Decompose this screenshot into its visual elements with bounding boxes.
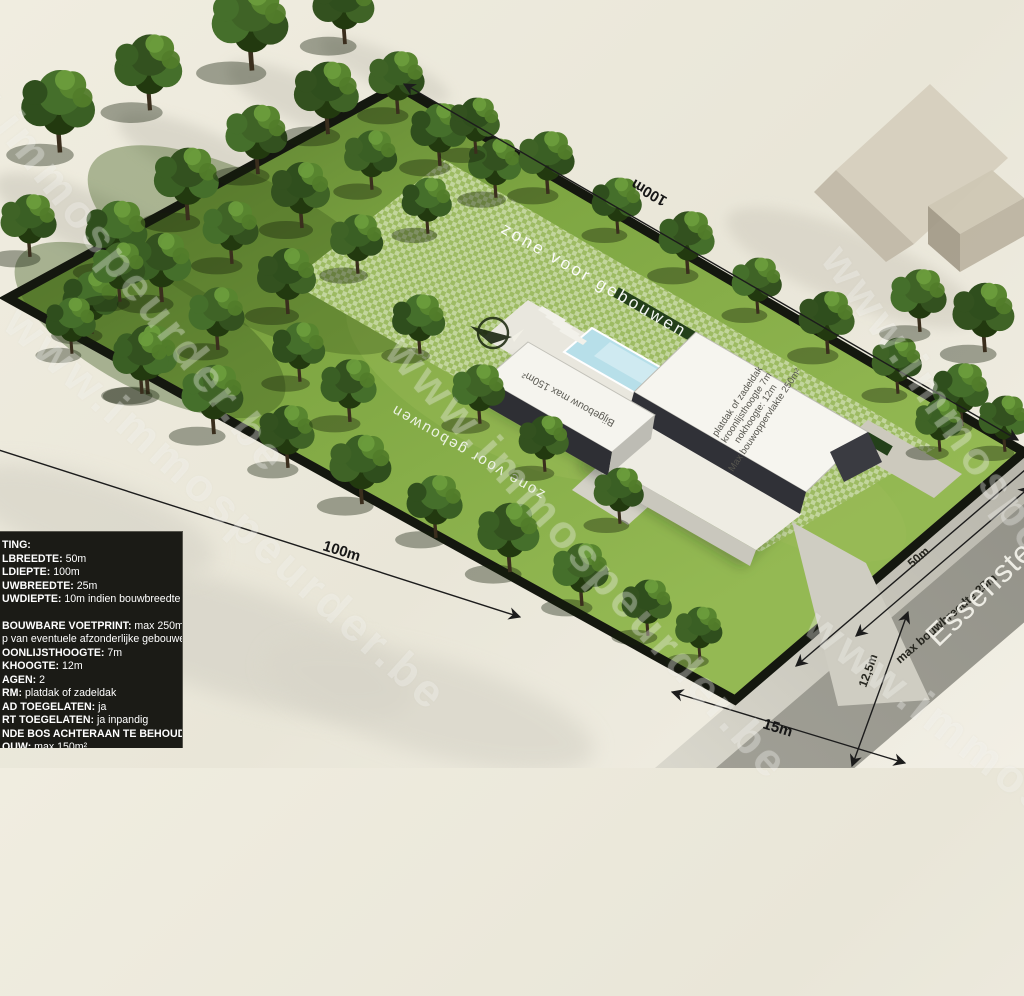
info-panel: TING:LBREEDTE: 50mLDIEPTE: 100mUWBREEDTE… <box>0 531 183 748</box>
info-panel-line: LBREEDTE: 50m <box>2 553 178 567</box>
info-panel-line: KHOOGTE: 12m <box>2 660 178 674</box>
info-panel-line: p van eventuele afzonderlijke gebouwen <box>2 633 178 647</box>
info-panel-line: RT TOEGELATEN: ja inpandig <box>2 714 178 728</box>
info-panel-line <box>2 607 178 620</box>
tree <box>101 34 183 123</box>
info-panel-line: BOUWBARE VOETPRINT: max 250m² <box>2 620 178 634</box>
info-panel-line: AGEN: 2 <box>2 674 178 688</box>
info-panel-line: AD TOEGELATEN: ja <box>2 701 178 715</box>
info-panel-line: OONLIJSTHOOGTE: 7m <box>2 647 178 661</box>
info-panel-line: UWBREEDTE: 25m <box>2 580 178 594</box>
info-panel-line: RM: platdak of zadeldak <box>2 687 178 701</box>
dim-depth-left: 100m <box>321 538 363 565</box>
info-panel-line: LDIEPTE: 100m <box>2 566 178 580</box>
info-panel-line: NDE BOS ACHTERAAN TE BEHOUDEN <box>2 728 178 742</box>
site-plan-canvas: zone voor gebouwen platdak of zadeldak k… <box>0 0 1024 768</box>
info-panel-line: TING: <box>2 539 178 553</box>
info-panel-line: OUW: max 150m² <box>2 741 178 748</box>
tree <box>6 70 95 166</box>
info-panel-line: UWDIEPTE: 10m indien bouwbreedte <box>2 593 178 607</box>
